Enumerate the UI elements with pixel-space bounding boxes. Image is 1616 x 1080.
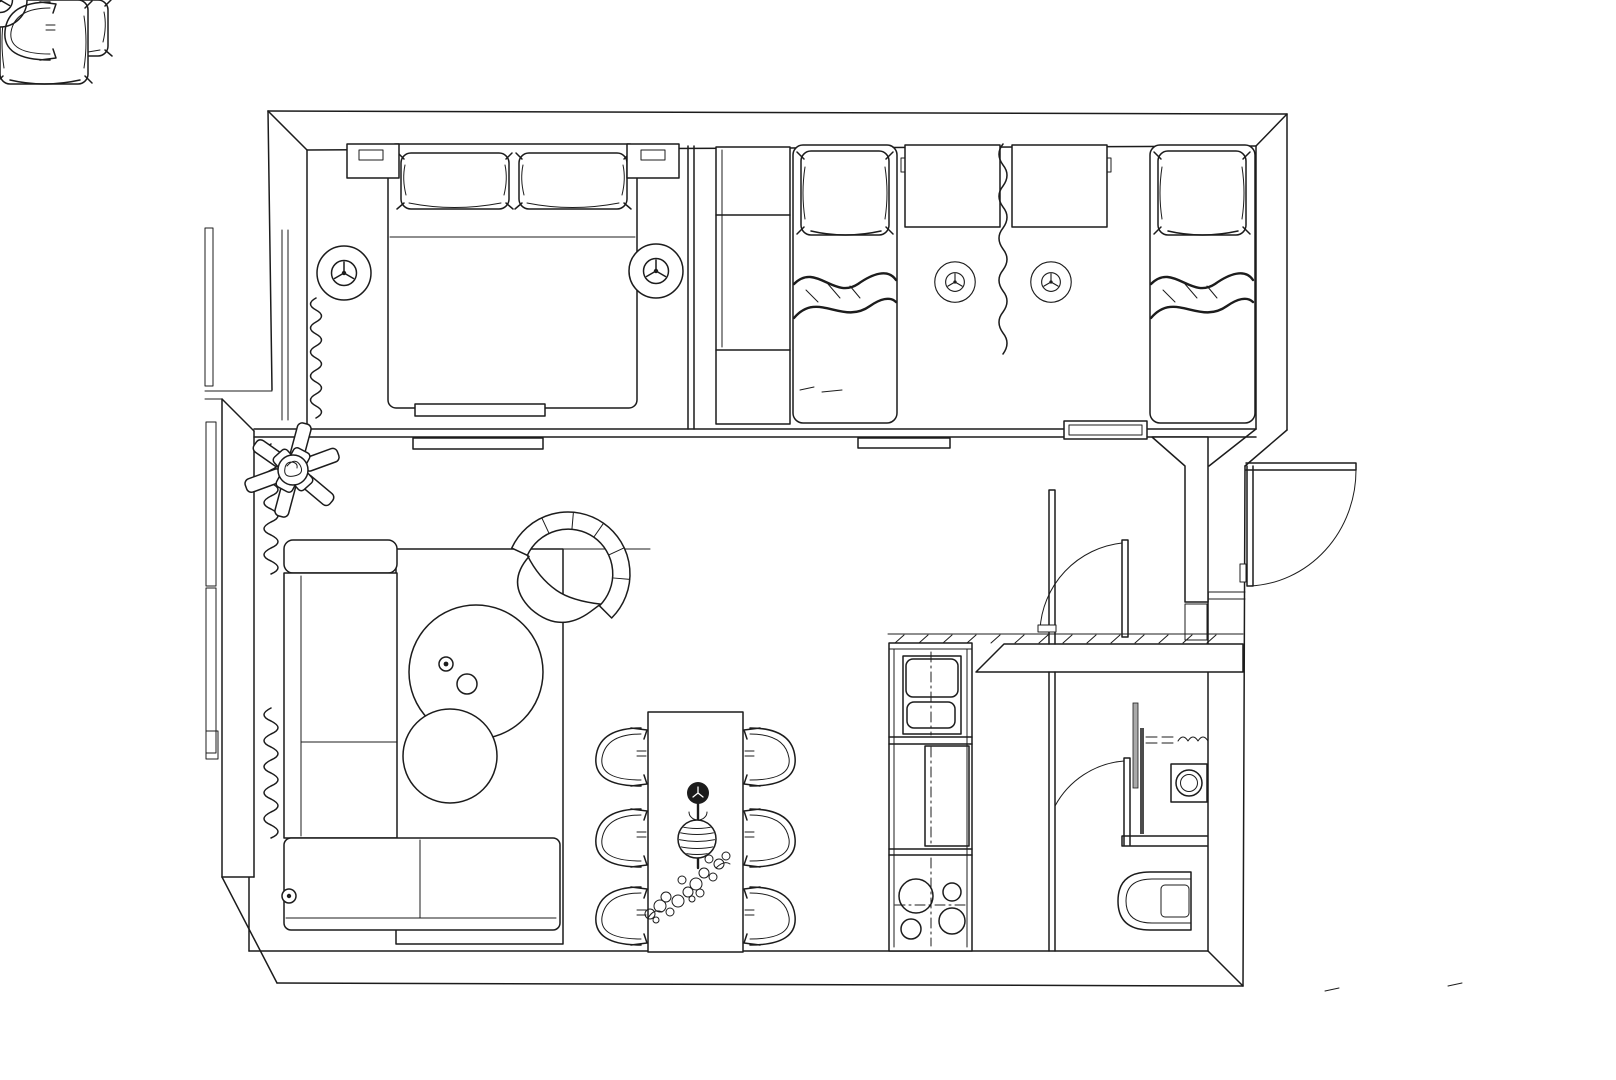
door-handle — [1038, 625, 1056, 632]
floor-plan-canvas — [0, 0, 1616, 1080]
nightstand-left — [347, 144, 399, 178]
dining-chair — [744, 887, 795, 945]
wardrobe — [716, 147, 790, 424]
hall-partition-wall — [1049, 490, 1055, 951]
living-room — [244, 422, 655, 944]
dining-chair — [596, 809, 647, 867]
bathroom — [1055, 703, 1208, 930]
entry-pier-wall — [1152, 437, 1208, 640]
door-swing-arc — [1055, 761, 1124, 806]
dining-chair — [596, 887, 647, 945]
bathroom-inner-wall — [1122, 836, 1207, 846]
entrance-door — [1240, 463, 1356, 586]
dining-chair — [596, 728, 647, 786]
bed-bench — [415, 404, 545, 416]
sliding-door-panel — [413, 438, 543, 449]
master-bedroom — [0, 0, 679, 418]
kids-desk — [1012, 145, 1107, 227]
window — [206, 422, 216, 586]
window — [205, 228, 213, 386]
shoe-nook — [1185, 604, 1207, 640]
pillow — [1154, 151, 1250, 235]
ceiling-light-icon — [935, 262, 976, 303]
floor-plan-page — [0, 0, 1616, 1080]
ceiling-light-icon — [629, 244, 683, 298]
sliding-door-panel — [858, 438, 950, 448]
wall-window-glazing — [282, 230, 288, 420]
bathroom-door — [1055, 758, 1130, 845]
sofa-armrest — [284, 540, 397, 573]
window — [206, 588, 216, 753]
ceiling-light-icon — [317, 246, 371, 300]
ceiling-light-icon — [1031, 262, 1072, 303]
threshold-hatch — [888, 634, 1243, 643]
curtain-zigzag — [264, 708, 278, 838]
hall-wall-band — [976, 644, 1243, 672]
dining-chair — [744, 809, 795, 867]
door-handle — [1240, 564, 1246, 582]
dining-chair — [744, 728, 795, 786]
low-cabinet — [1064, 421, 1147, 439]
door-swing-arc — [1040, 543, 1122, 630]
bedroom-partition — [688, 146, 694, 429]
curtain-zigzag — [311, 298, 322, 418]
toilet — [1118, 872, 1191, 930]
kids-desk — [905, 145, 1000, 227]
washing-machine — [1171, 764, 1207, 802]
coffee-table-small — [403, 709, 497, 803]
pillow — [397, 153, 513, 209]
sketch-marks — [1325, 983, 1462, 991]
pillow — [797, 151, 893, 235]
pillow — [515, 153, 631, 209]
sofa-chaise — [284, 838, 560, 930]
living-room-door — [1038, 540, 1128, 637]
door-swing-arc — [1250, 470, 1356, 586]
shower-curtain — [1146, 737, 1208, 743]
shower-glass-panel — [1140, 728, 1144, 834]
shower-glass-panel — [1133, 703, 1138, 788]
nightstand-right — [627, 144, 679, 178]
kitchen — [889, 643, 972, 951]
